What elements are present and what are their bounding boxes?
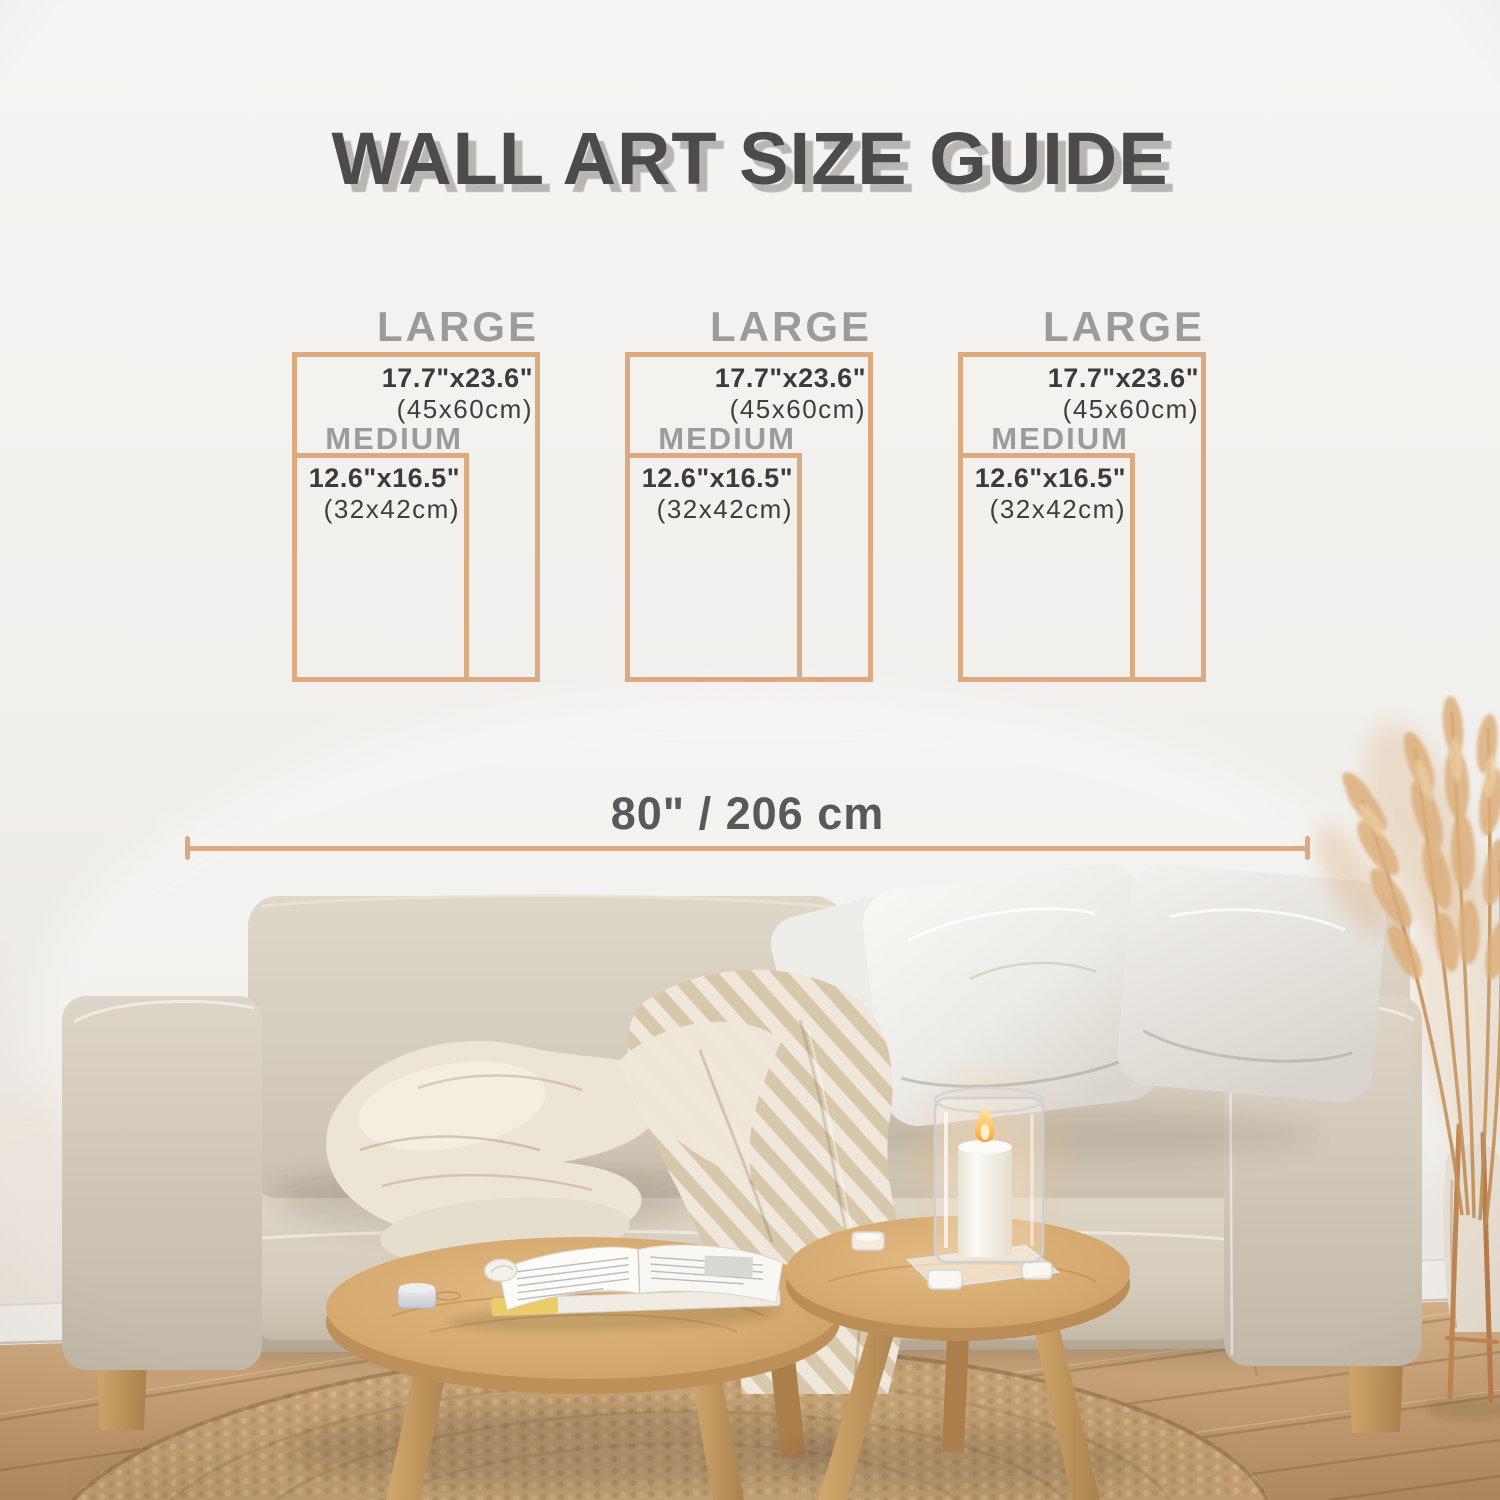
size-frame-1: LARGE 17.7"x23.6" (45x60cm) MEDIUM 12.6"… — [292, 306, 540, 682]
size-frame-3: LARGE 17.7"x23.6" (45x60cm) MEDIUM 12.6"… — [958, 306, 1206, 682]
medium-dimensions: 12.6"x16.5" (32x42cm) — [975, 463, 1126, 525]
page-title: WALL ART SIZE GUIDE — [0, 122, 1500, 196]
large-size-box: 17.7"x23.6" (45x60cm) MEDIUM 12.6"x16.5"… — [958, 352, 1206, 682]
large-dimensions: 17.7"x23.6" (45x60cm) — [382, 363, 533, 425]
large-dimensions: 17.7"x23.6" (45x60cm) — [1048, 363, 1199, 425]
medium-size-cm: (32x42cm) — [309, 494, 460, 525]
vignette-overlay — [0, 0, 1500, 1500]
medium-dimensions: 12.6"x16.5" (32x42cm) — [309, 463, 460, 525]
medium-size-inches: 12.6"x16.5" — [642, 463, 793, 494]
medium-label: MEDIUM — [625, 421, 802, 457]
medium-size-box: 12.6"x16.5" (32x42cm) — [292, 453, 469, 682]
large-label: LARGE — [292, 306, 540, 348]
medium-size-cm: (32x42cm) — [975, 494, 1126, 525]
large-label: LARGE — [958, 306, 1206, 348]
wall-width-label: 80" / 206 cm — [185, 788, 1310, 840]
wall-width-measurement: 80" / 206 cm — [185, 788, 1310, 862]
medium-size-box: 12.6"x16.5" (32x42cm) — [958, 453, 1135, 682]
large-size-box: 17.7"x23.6" (45x60cm) MEDIUM 12.6"x16.5"… — [292, 352, 540, 682]
medium-size-box: 12.6"x16.5" (32x42cm) — [625, 453, 802, 682]
large-size-box: 17.7"x23.6" (45x60cm) MEDIUM 12.6"x16.5"… — [625, 352, 873, 682]
size-frame-2: LARGE 17.7"x23.6" (45x60cm) MEDIUM 12.6"… — [625, 306, 873, 682]
measurement-endcap-right — [1305, 836, 1310, 860]
size-comparison-row: LARGE 17.7"x23.6" (45x60cm) MEDIUM 12.6"… — [292, 306, 1206, 682]
measurement-line — [185, 846, 1310, 851]
medium-dimensions: 12.6"x16.5" (32x42cm) — [642, 463, 793, 525]
medium-label: MEDIUM — [292, 421, 469, 457]
wall-art-size-guide-infographic: WALL ART SIZE GUIDE LARGE 17.7"x23.6" (4… — [0, 0, 1500, 1500]
large-dimensions: 17.7"x23.6" (45x60cm) — [715, 363, 866, 425]
living-room-scene — [0, 0, 1500, 1500]
large-label: LARGE — [625, 306, 873, 348]
large-size-inches: 17.7"x23.6" — [1048, 363, 1199, 394]
medium-label: MEDIUM — [958, 421, 1135, 457]
medium-size-inches: 12.6"x16.5" — [309, 463, 460, 494]
medium-size-cm: (32x42cm) — [642, 494, 793, 525]
large-size-inches: 17.7"x23.6" — [382, 363, 533, 394]
medium-size-inches: 12.6"x16.5" — [975, 463, 1126, 494]
measurement-endcap-left — [185, 836, 190, 860]
large-size-inches: 17.7"x23.6" — [715, 363, 866, 394]
